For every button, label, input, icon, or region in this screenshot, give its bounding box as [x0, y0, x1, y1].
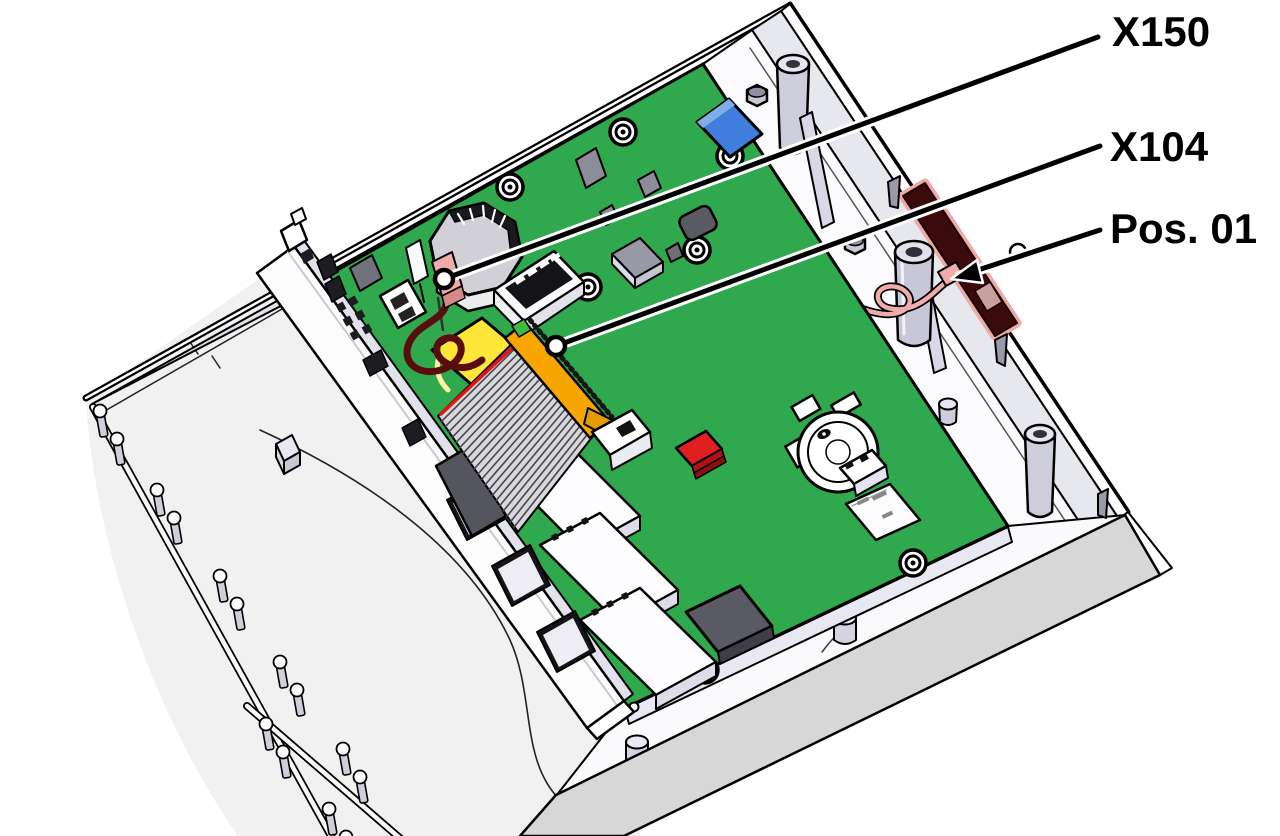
- callout-label-x150: X150: [1112, 8, 1210, 55]
- technical-illustration: X150 X104 Pos. 01: [0, 0, 1280, 836]
- leader-endpoint-x104: [547, 337, 565, 355]
- leader-endpoint-x150: [435, 270, 453, 288]
- callout-label-pos01: Pos. 01: [1110, 205, 1257, 252]
- standoff-post-corner: [1025, 425, 1055, 517]
- wall-clip-2: [995, 334, 1007, 366]
- panel-top-tab: [291, 208, 306, 225]
- leader-pos01: [972, 230, 1100, 272]
- standoff-post-small: [939, 399, 957, 426]
- wall-clip-3: [1098, 489, 1108, 518]
- callout-label-x104: X104: [1110, 123, 1209, 170]
- wall-clip-1: [888, 176, 900, 208]
- enclosure-drawing: X150 X104 Pos. 01: [0, 0, 1280, 836]
- hex-nut-top: [747, 85, 767, 106]
